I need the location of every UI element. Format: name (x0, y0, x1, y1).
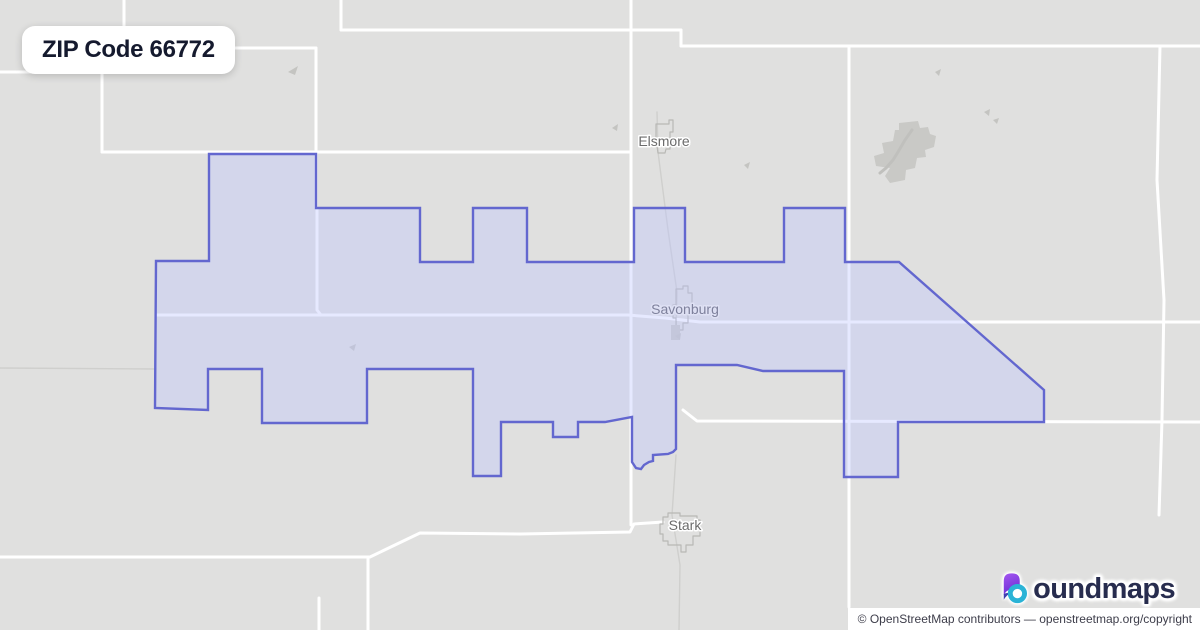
town-label-elsmore: Elsmore (638, 133, 690, 149)
osm-copyright-link[interactable]: © OpenStreetMap contributors — openstree… (858, 612, 1192, 626)
map-canvas[interactable]: ElsmoreSavonburgStark (0, 0, 1200, 630)
town-label-stark: Stark (669, 517, 703, 533)
map-attribution-bar: © OpenStreetMap contributors — openstree… (848, 608, 1200, 630)
zip-code-badge: ZIP Code 66772 (22, 26, 235, 74)
boundmaps-logo-icon (1000, 569, 1032, 604)
minor-road-line (0, 368, 156, 369)
town-label-savonburg: Savonburg (651, 301, 719, 317)
zip-code-badge-label: ZIP Code 66772 (42, 36, 215, 63)
map-viewport: ElsmoreSavonburgStark ZIP Code 66772 oun… (0, 0, 1200, 630)
boundmaps-logo[interactable]: oundmaps (1000, 569, 1175, 604)
boundmaps-logo-text: oundmaps (1033, 576, 1175, 604)
